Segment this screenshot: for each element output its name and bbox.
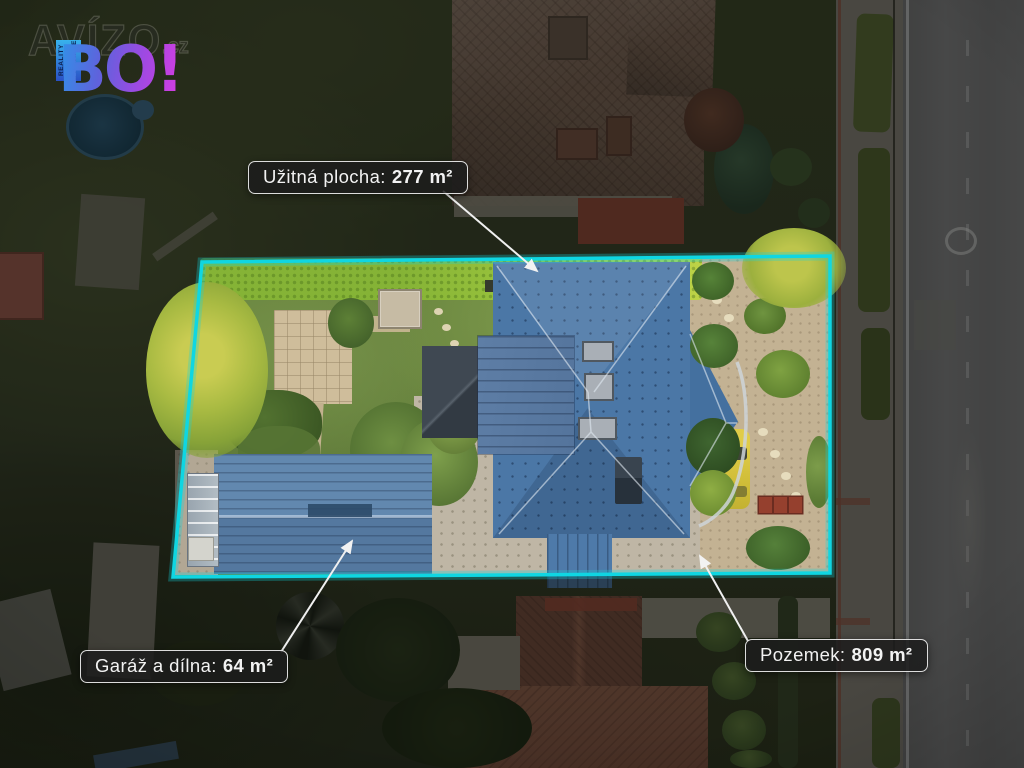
garage-area-value: 64 m² (223, 655, 273, 677)
plot-area-label: Pozemek: (760, 644, 845, 666)
plot-area-tag: Pozemek: 809 m² (745, 639, 928, 672)
agency-logo: AVÍZO.cz REALITY & FINANCE BO! (28, 14, 258, 144)
usable-area-value: 277 m² (392, 166, 453, 188)
usable-area-label: Užitná plocha: (263, 166, 386, 188)
plot-boundary (173, 256, 830, 577)
plot-boundary-glow (173, 256, 830, 577)
garage-area-tag: Garáž a dílna: 64 m² (80, 650, 288, 683)
leader-garage (281, 541, 352, 652)
leader-plot (700, 556, 748, 641)
usable-area-tag: Užitná plocha: 277 m² (248, 161, 468, 194)
plot-area-value: 809 m² (851, 644, 912, 666)
garage-area-label: Garáž a dílna: (95, 655, 217, 677)
bo-logo-text: BO! (58, 40, 181, 100)
roof-ridge-lines (497, 266, 737, 534)
aerial-photo: Užitná plocha: 277 m² Garáž a dílna: 64 … (0, 0, 1024, 768)
roof-gutter-curve (699, 362, 746, 526)
